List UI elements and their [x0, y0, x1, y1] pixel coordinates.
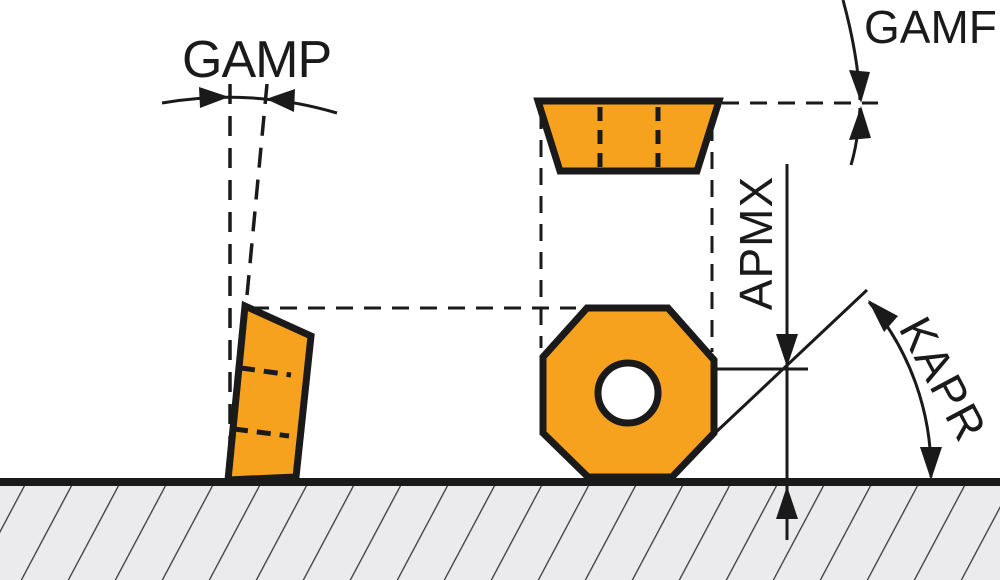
- kapr-edge-line: [714, 290, 867, 434]
- insert-side-view: [228, 306, 311, 480]
- insert-top-view-body: [538, 101, 719, 171]
- insert-side-view-body: [228, 306, 311, 480]
- ground-hatch: [0, 483, 1000, 580]
- gamp-arc: [162, 97, 337, 113]
- kapr-arrow-bottom: [920, 447, 942, 480]
- insert-front-view: [543, 308, 714, 477]
- apmx-arrow-top: [776, 334, 798, 367]
- kapr-annotation: KAPR: [714, 290, 998, 480]
- ground-surface: [0, 482, 1000, 580]
- gamp-ref-line-tilted: [246, 84, 267, 306]
- gamf-arrow-down: [849, 70, 870, 103]
- kapr-label: KAPR: [889, 308, 997, 450]
- insert-hole: [598, 363, 658, 423]
- gamp-arrow-left: [199, 87, 229, 108]
- insert-top-view: [538, 101, 719, 171]
- gamp-arrow-right: [266, 89, 295, 112]
- kapr-arrow-top: [868, 300, 898, 332]
- gamf-arrow-up: [849, 106, 871, 140]
- insert-geometry-diagram: GAMP GAMF APMX KAPR: [0, 0, 1000, 580]
- gamp-label: GAMP: [182, 31, 331, 89]
- gamf-annotation: GAMF: [843, 0, 997, 165]
- gamf-label: GAMF: [864, 1, 997, 53]
- diagram-canvas: GAMP GAMF APMX KAPR: [0, 0, 1000, 580]
- apmx-label: APMX: [730, 176, 782, 310]
